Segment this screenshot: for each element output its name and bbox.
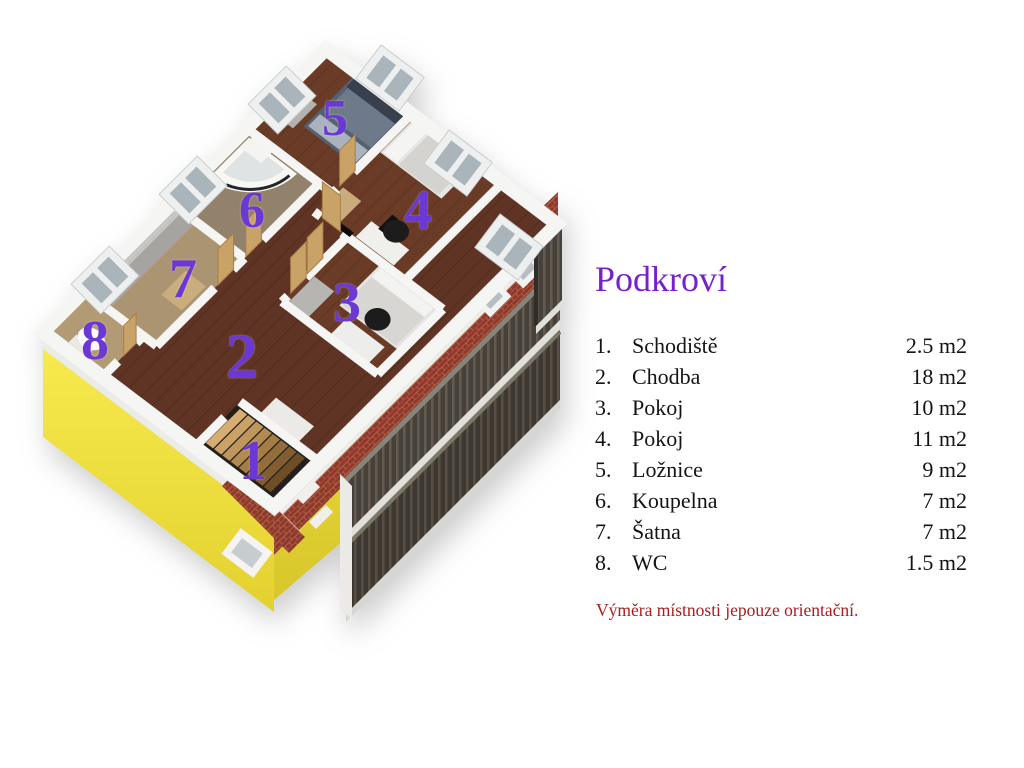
legend-row: 5. Ložnice 9 m2 <box>595 454 967 485</box>
room-name: Pokoj <box>632 423 912 454</box>
room-name: Pokoj <box>632 392 911 423</box>
legend-room-list: 1. Schodiště 2.5 m2 2. Chodba 18 m2 3. P… <box>595 330 967 578</box>
room-name: Šatna <box>632 516 922 547</box>
room-area: 9 m2 <box>922 454 967 485</box>
legend-row: 1. Schodiště 2.5 m2 <box>595 330 967 361</box>
legend-row: 4. Pokoj 11 m2 <box>595 423 967 454</box>
room-area: 10 m2 <box>911 392 967 423</box>
room-area: 11 m2 <box>912 423 967 454</box>
legend-row: 8. WC 1.5 m2 <box>595 547 967 578</box>
room-number: 2. <box>595 361 632 392</box>
legend-row: 6. Koupelna 7 m2 <box>595 485 967 516</box>
room-name: Chodba <box>632 361 911 392</box>
legend-row: 2. Chodba 18 m2 <box>595 361 967 392</box>
room-area: 1.5 m2 <box>906 547 967 578</box>
room-number: 4. <box>595 423 632 454</box>
legend-note: Výměra místnosti jepouze orientační. <box>596 600 858 621</box>
room-number: 3. <box>595 392 632 423</box>
room-area: 2.5 m2 <box>906 330 967 361</box>
room-number: 5. <box>595 454 632 485</box>
room-name: Koupelna <box>632 485 922 516</box>
room-number: 6. <box>595 485 632 516</box>
page: 12345678 Podkroví 1. Schodiště 2.5 m2 2.… <box>0 0 1024 768</box>
room-number: 8. <box>595 547 632 578</box>
room-area: 7 m2 <box>922 485 967 516</box>
room-name: WC <box>632 547 906 578</box>
room-name: Ložnice <box>632 454 922 485</box>
room-area: 18 m2 <box>911 361 967 392</box>
legend-row: 7. Šatna 7 m2 <box>595 516 967 547</box>
room-number: 1. <box>595 330 632 361</box>
room-number: 7. <box>595 516 632 547</box>
room-area: 7 m2 <box>922 516 967 547</box>
legend-row: 3. Pokoj 10 m2 <box>595 392 967 423</box>
legend-title: Podkroví <box>595 258 727 300</box>
room-name: Schodiště <box>632 330 906 361</box>
